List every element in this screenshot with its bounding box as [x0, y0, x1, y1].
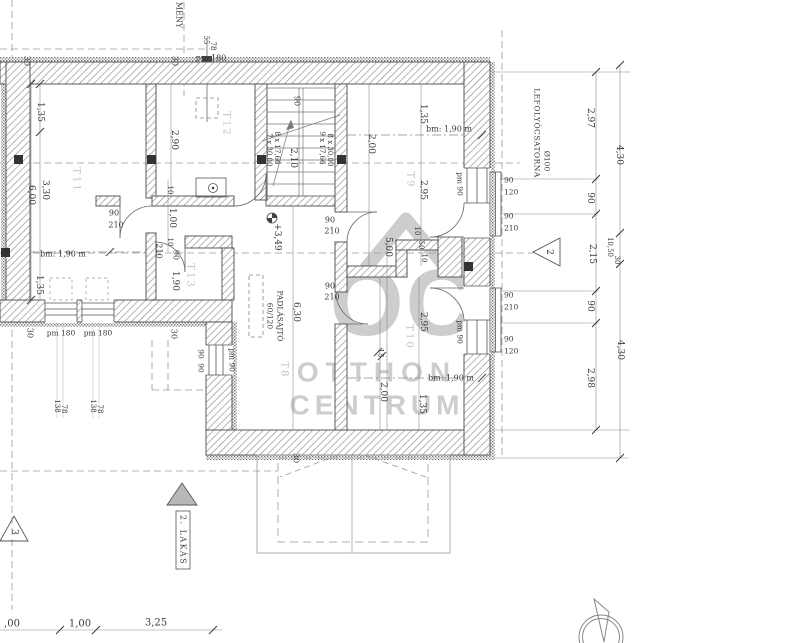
wall-stair-right [335, 84, 347, 212]
dim-78b: 78 [96, 405, 104, 414]
note-kemeny: MÉNY [175, 2, 184, 29]
wall-t13-right [222, 248, 234, 300]
room-label-t12: T12 [221, 111, 232, 136]
section-marker-2-label: 2 [544, 249, 554, 255]
north-arrow [579, 599, 623, 643]
wall-strip-b [152, 196, 234, 206]
dim-30-bl: 30 [26, 328, 35, 338]
wall-outer-bottom [206, 430, 490, 455]
dim-door-hall-t10-210: 210 [324, 293, 339, 302]
note-pm180-top: pm 180 [196, 54, 227, 63]
section-marker-3-label: 3 [9, 529, 19, 535]
wall-outer-right [464, 62, 490, 455]
note-bm-t10: bm: 1,90 m [428, 374, 474, 383]
room-label-t11: T11 [71, 167, 82, 192]
wall-strip-a [96, 196, 120, 206]
wall-t13-left [146, 233, 156, 300]
note-pm90-step: pm 90 [228, 348, 237, 372]
dim-door-210b: 210 [504, 303, 519, 312]
dim-200-t10: 2,00 [378, 382, 388, 402]
dim-door-210a: 210 [504, 224, 519, 233]
dim-295-t9: 2,95 [418, 180, 428, 200]
sink [196, 178, 226, 197]
dim-138b: 138 [89, 399, 97, 412]
dim-win-120a: 120 [504, 188, 519, 197]
dim-30-bottom: 30 [292, 453, 301, 463]
dim-30-top: 30 [171, 56, 180, 66]
attic-door-outline [249, 275, 263, 337]
dim-90-chain2: 90 [585, 300, 595, 312]
floor-plan-canvas: OC OTTHON CENTRUM [0, 0, 800, 643]
dim-10b: 10 [166, 238, 174, 247]
note-pm180-a: pm 180 [47, 329, 76, 338]
dim-1050-outer: 10,50 [606, 237, 614, 257]
dim-290-t12: 2,90 [169, 130, 179, 150]
dim-90-stair: 90 [293, 96, 302, 106]
dim-78-chimney: 78 [209, 42, 217, 51]
dim-298-chain: 2,98 [585, 368, 595, 388]
dim-10a: 10 [166, 186, 174, 195]
dim-135-t10: 1,35 [417, 394, 427, 414]
dim-bottom-00: ,00 [4, 619, 20, 630]
furniture-dashed-2 [86, 278, 108, 300]
dim-135-t11: 1,35 [35, 102, 45, 122]
dim-30-outer: 30 [613, 256, 621, 265]
wall-strip-c [266, 196, 338, 206]
note-bm-t9: bm: 1,90 m [426, 125, 472, 134]
stair-steps-left-2: 7 x 30,00 [265, 134, 273, 167]
dim-door-90a: 90 [504, 212, 514, 221]
door-t9-right [430, 203, 464, 237]
dim-door-hall-t10-90: 90 [325, 282, 335, 291]
dim-210-t13: 210 [155, 243, 164, 258]
dim-90-t13: 90 [172, 250, 181, 260]
room-label-t10: T10 [404, 324, 415, 349]
dim-win-120b: 120 [504, 347, 519, 356]
wall-outer-top [0, 62, 490, 84]
room-label-t13: T13 [185, 263, 196, 288]
dim-30-bl2: 30 [170, 329, 179, 339]
dim-100: 1,00 [167, 208, 177, 228]
wall-hall-a [335, 242, 347, 292]
dim-15: 15 [377, 348, 386, 358]
dim-138a: 138 [53, 399, 61, 412]
dim-330-t11: 3,30 [40, 180, 50, 200]
dim-500: 5,00 [383, 237, 393, 257]
level-marker [267, 213, 277, 223]
dim-bottom-100: 1,00 [69, 619, 91, 630]
dim-430-outer1: 4,30 [614, 145, 624, 165]
dim-door-t13-210: 210 [108, 221, 123, 230]
wall-t11-t12 [146, 84, 156, 198]
dim-55-chimney: 55 [202, 36, 210, 45]
furniture-dashed-1 [50, 278, 72, 300]
dim-win-90b: 90 [504, 335, 514, 344]
stair-steps-right-2: 8 x 30,00 [326, 134, 334, 167]
dim-135-low: 1,35 [34, 275, 44, 295]
dim-90-step2: 90 [197, 363, 206, 373]
note-drainpipe: LEFOLYÓCSATORNA [533, 88, 542, 178]
note-pm180-b: pm 180 [84, 329, 113, 338]
room-label-t8: T8 [279, 361, 290, 378]
watermark-line2: CENTRUM [290, 390, 465, 421]
dim-90-step1: 90 [197, 349, 206, 359]
dim-135-t9: 1,35 [418, 104, 428, 124]
stair-steps-left-1: 8 x 17,66 [273, 132, 281, 165]
dim-door-90b: 90 [504, 291, 514, 300]
dim-190-t13: 1,90 [170, 271, 180, 291]
porch [257, 455, 450, 553]
dim-10d: 10 [420, 254, 428, 263]
note-drainpipe-size: Ø100 [543, 151, 552, 172]
floor-plan-page: OC OTTHON CENTRUM [0, 0, 800, 643]
wall-t13-top [185, 236, 232, 248]
dim-door-hall-t9-90: 90 [325, 216, 335, 225]
dim-10c: 10 [413, 227, 421, 236]
room-label-t9: T9 [405, 171, 416, 188]
stair-arrowhead [286, 120, 294, 130]
dim-door-hall-t9-210: 210 [324, 227, 339, 236]
dim-295-t10: 2,95 [418, 312, 428, 332]
door-stair-t9 [347, 212, 377, 242]
dim-78a: 78 [60, 405, 68, 414]
dim-200-t9: 2,00 [366, 134, 376, 154]
dim-215-chain: 2,15 [587, 244, 597, 264]
watermark-line1: OTTHON [297, 357, 457, 388]
dim-630-hall: 6,30 [291, 302, 301, 322]
wall-outer-step [206, 322, 232, 432]
level-value: +3,49 [272, 223, 282, 251]
dim-win-90a: 90 [504, 176, 514, 185]
note-pm90-t10: pm 90 [456, 320, 465, 344]
dim-50: 50 [417, 241, 425, 250]
note-bm-t11: bm: 1,90 m [40, 250, 86, 259]
wall-hall-b [335, 324, 347, 430]
note-atticdoor: PADLÁSAJTÓ [276, 291, 285, 342]
apartment-label: 2. LAKÁS [179, 515, 188, 565]
dim-90-chain1: 90 [585, 192, 595, 204]
wall-pier [438, 237, 462, 277]
note-atticdoor-size: 60/120 [266, 303, 275, 330]
dim-bottom-325: 3,25 [145, 618, 167, 629]
dim-30-topleft: 30 [23, 56, 32, 66]
dim-430-outer2: 4,30 [615, 340, 625, 360]
dim-door-t13-90: 90 [109, 209, 119, 218]
dim-600-t11: 6,00 [26, 185, 36, 205]
note-pm90-t9: pm 90 [456, 172, 465, 196]
dim-297-chain: 2,97 [585, 108, 595, 128]
wall-outer-bottomleft [0, 300, 232, 322]
dim-210-stair: 2,10 [288, 148, 298, 168]
entrance-arrow [167, 483, 197, 505]
stair-steps-right-1: 9 x 17,66 [318, 132, 326, 165]
